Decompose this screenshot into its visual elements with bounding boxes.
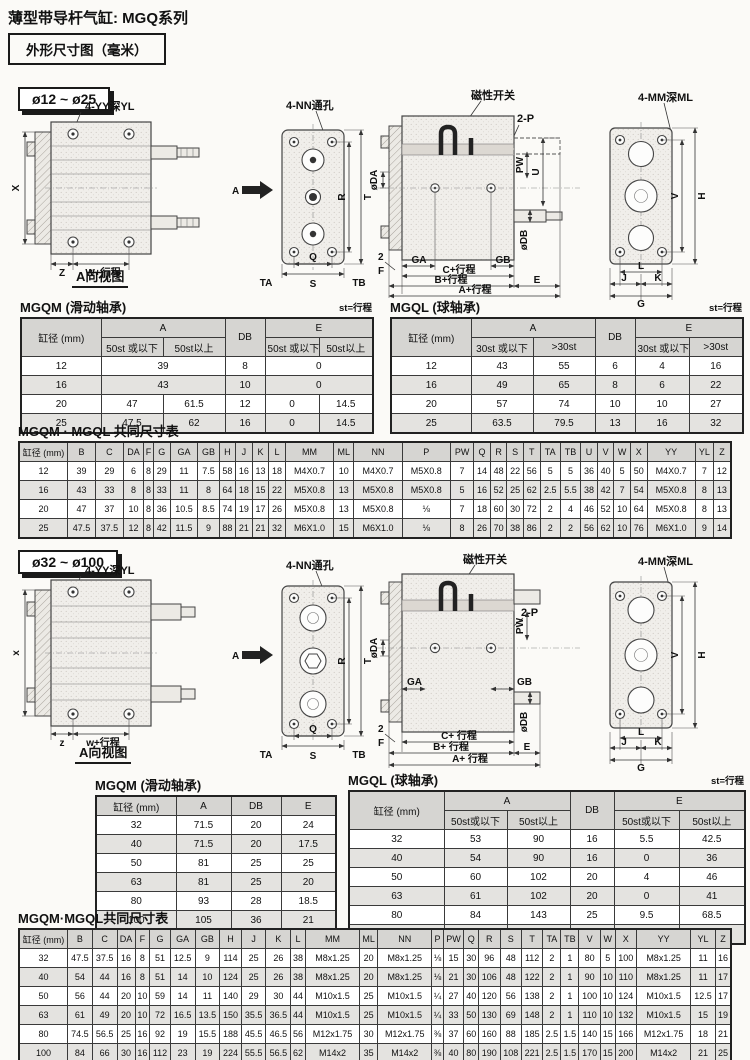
dim-label-f: F <box>378 738 384 749</box>
header-cell: GA <box>170 929 195 949</box>
cell: 30 <box>117 1044 135 1060</box>
cell: 10 <box>225 376 265 395</box>
cell: 20 <box>19 500 68 519</box>
dim-label-h: H <box>697 651 708 658</box>
table-title-common-s2: MGQM·MGQL共同尺寸表 <box>18 911 168 926</box>
cell: 5 <box>600 949 615 968</box>
cell: 42 <box>597 481 614 500</box>
cell: 47.5 <box>68 519 96 539</box>
cell: 64 <box>219 481 236 500</box>
dim-label-x: x <box>11 650 22 656</box>
cell: 8 <box>144 481 154 500</box>
cell: 20 <box>231 835 281 854</box>
cell: 1.5 <box>561 1044 579 1060</box>
cell: 36 <box>679 849 745 868</box>
header-cell: P <box>402 442 450 462</box>
cell: 19 <box>236 500 253 519</box>
cell: M10x1.5 <box>378 1006 432 1025</box>
common-table-s2: 缸径 (mm)BCDAFGGAGBHJKLMMMLNNPPWQRSTTATBVW… <box>18 928 732 1060</box>
datasheet-page: 薄型带导杆气缸: MGQ系列 外形尺寸图（毫米） ø12 ~ ø25 4-YY深… <box>0 0 750 1060</box>
header-cell: Q <box>474 442 491 462</box>
dim-label-db: øDB <box>519 230 530 251</box>
cell: 200 <box>615 1044 636 1060</box>
cell: 18 <box>474 500 491 519</box>
cell: 44 <box>291 987 306 1006</box>
cell: 7 <box>614 481 631 500</box>
cell: 50 <box>349 868 444 887</box>
cell: 32 <box>96 816 176 835</box>
header-cell: NN <box>354 442 402 462</box>
cell: 65 <box>533 376 595 395</box>
header-cell: GB <box>195 929 220 949</box>
header-cell: V <box>597 442 614 462</box>
cell: 24 <box>281 816 336 835</box>
cell: 2 <box>540 500 560 519</box>
cell: 0 <box>614 849 679 868</box>
cell: 13 <box>713 500 731 519</box>
cell: 12 <box>713 462 731 481</box>
cell: 18 <box>269 462 286 481</box>
section-view-diagram-s1: 磁性开关 2-P øDA PW U øDB GA GB C+行程 B+行程 E … <box>375 88 585 300</box>
cell: 35.5 <box>241 1006 266 1025</box>
header-cell: F <box>144 442 154 462</box>
cell: 148 <box>521 1006 542 1025</box>
cell: 8 <box>695 481 713 500</box>
cell: 60 <box>464 1025 479 1044</box>
cell: 20 <box>570 868 614 887</box>
cell: 60 <box>444 868 507 887</box>
cell: 48 <box>500 968 521 987</box>
cell: 10 <box>614 519 631 539</box>
cell: 32 <box>349 830 444 849</box>
cell: 170 <box>579 1044 600 1060</box>
cell: 33 <box>153 481 170 500</box>
cell: 124 <box>220 968 241 987</box>
cell: 69 <box>500 1006 521 1025</box>
cell: M10x1.5 <box>637 987 691 1006</box>
page-title: 薄型带导杆气缸: MGQ系列 <box>8 7 188 28</box>
dim-label-s: S <box>310 279 317 290</box>
header-cell: S <box>500 929 521 949</box>
cell: 140 <box>220 987 241 1006</box>
table-row: 63614920107216.513.515035.536.544M10x1.5… <box>19 1006 731 1025</box>
cell: 14.5 <box>319 395 373 414</box>
cell: 140 <box>579 1025 600 1044</box>
cell: 2 <box>540 519 560 539</box>
cell: 66 <box>92 1044 117 1060</box>
dim-label-ta: TA <box>260 278 273 289</box>
callout-2p-port: 2-P <box>521 607 538 619</box>
cell: M6X1.0 <box>647 519 695 539</box>
cell: 96 <box>479 949 500 968</box>
cell: 8 <box>595 376 635 395</box>
cell: 25 <box>360 987 378 1006</box>
cell: 45.5 <box>241 1025 266 1044</box>
table-row: 636110220041 <box>349 887 745 906</box>
callout-nn: 4-NN通孔 <box>286 559 334 572</box>
cell: 17 <box>715 968 731 987</box>
cell: 46.5 <box>266 1025 291 1044</box>
callout-magnetic-switch: 磁性开关 <box>471 88 515 102</box>
mgqm-block-s1: MGQM (滑动轴承)st=行程 缸径 (mm)ADBE50st 或以下50st… <box>20 297 372 434</box>
cell: 56 <box>500 987 521 1006</box>
cell: 26 <box>474 519 491 539</box>
cell: 8 <box>225 357 265 376</box>
cell: 25 <box>231 854 281 873</box>
cell: 26 <box>266 968 291 987</box>
cell: 122 <box>521 968 542 987</box>
cell: 16 <box>135 1044 150 1060</box>
cell: 16 <box>236 462 253 481</box>
cell: M4X0.7 <box>647 462 695 481</box>
cell: 40 <box>597 462 614 481</box>
table-row: 63812520 <box>96 873 336 892</box>
header-cell: YY <box>647 442 695 462</box>
header-cell: 50st以上 <box>679 811 745 830</box>
header-cell: TB <box>560 442 580 462</box>
header-cell: T <box>523 442 540 462</box>
cell: 44 <box>291 1006 306 1025</box>
dim-label-a-stroke: A+ 行程 <box>452 752 488 765</box>
cell: 60 <box>490 500 507 519</box>
cell: 124 <box>615 987 636 1006</box>
cell: ¼ <box>432 1006 443 1025</box>
cell: 47 <box>68 500 96 519</box>
cell: 15 <box>691 1006 716 1025</box>
header-cell: A <box>471 318 595 338</box>
cell: 63 <box>19 1006 68 1025</box>
table-row: 164333883311864181522M5X0.813M5X0.8M5X0.… <box>19 481 731 500</box>
cell: 0 <box>265 376 373 395</box>
cell: 21 <box>715 1025 731 1044</box>
section-view-diagram-s2: 磁性开关 2-P øDA PW GA GB øDB C+ 行程 B+ 行程 E … <box>375 552 585 774</box>
cell: 2 <box>543 987 561 1006</box>
cell: 33 <box>443 1006 464 1025</box>
dim-label-v: V <box>670 192 681 199</box>
dim-label-e: E <box>524 742 531 753</box>
cell: 61 <box>68 1006 93 1025</box>
cell: 160 <box>479 1025 500 1044</box>
header-cell: TA <box>540 442 560 462</box>
table-row: 405444168511410124252638M8x1.2520M8x1.25… <box>19 968 731 987</box>
cell: 8 <box>135 949 150 968</box>
header-cell: W <box>600 929 615 949</box>
dim-label-c-stroke: C+ 行程 <box>441 729 477 742</box>
cell: 138 <box>521 987 542 1006</box>
dim-label-l: L <box>638 261 644 272</box>
cell: 16 <box>474 481 491 500</box>
dim-label-j: J <box>621 737 627 748</box>
cell: 49 <box>92 1006 117 1025</box>
header-cell: 缸径 (mm) <box>19 442 68 462</box>
cell: 54 <box>444 849 507 868</box>
dim-label-z: Z <box>59 268 65 279</box>
header-cell: J <box>241 929 266 949</box>
cell: 29 <box>241 987 266 1006</box>
cell: 10 <box>123 500 143 519</box>
cell: 14 <box>170 987 195 1006</box>
cell: ¼ <box>432 987 443 1006</box>
cell: 15 <box>600 1025 615 1044</box>
dim-label-r: R <box>337 657 348 665</box>
cell: 25 <box>19 519 68 539</box>
dim-label-da: øDA <box>369 638 380 659</box>
cell: 9 <box>195 949 220 968</box>
common-block-s2: MGQM·MGQL共同尺寸表 缸径 (mm)BCDAFGGAGBHJKLMMML… <box>18 908 732 1060</box>
table-header-row: 缸径 (mm)BCDAFGGAGBHJKLMMMLNNPPWQRSTTATBUV… <box>19 442 731 462</box>
cell: 9 <box>198 519 219 539</box>
cell: 40 <box>19 968 68 987</box>
dimension-box-title: 外形尺寸图（毫米） <box>8 33 166 65</box>
header-cell: S <box>507 442 524 462</box>
cell: 49 <box>471 376 533 395</box>
header-cell: 30st 或以下 <box>635 338 689 357</box>
cell: 25 <box>507 481 524 500</box>
dim-label-l: L <box>638 727 644 738</box>
cell: 61 <box>444 887 507 906</box>
header-cell: R <box>479 929 500 949</box>
cell: M8x1.25 <box>305 949 359 968</box>
cell: 39 <box>68 462 96 481</box>
cell: 44 <box>92 987 117 1006</box>
dim-label-db: øDB <box>519 712 530 733</box>
cell: M5X0.8 <box>285 500 333 519</box>
header-cell: 50st 或以下 <box>265 338 319 357</box>
header-cell: DA <box>123 442 143 462</box>
header-cell: A <box>101 318 225 338</box>
header-cell: E <box>281 796 336 816</box>
dim-label-k: K <box>654 273 662 284</box>
cell: 23 <box>170 1044 195 1060</box>
stroke-note: st=行程 <box>711 773 744 787</box>
header-cell: C <box>92 929 117 949</box>
cell: 37.5 <box>95 519 123 539</box>
cell: 56 <box>68 987 93 1006</box>
cell: 59 <box>150 987 171 1006</box>
cell: 10 <box>600 987 615 1006</box>
cell: 21 <box>691 1044 716 1060</box>
cell: 20 <box>570 887 614 906</box>
cell: 55 <box>533 357 595 376</box>
cell: 81 <box>176 873 231 892</box>
cell: M4X0.7 <box>354 462 402 481</box>
cell: 8.5 <box>198 500 219 519</box>
cell: 13 <box>334 500 354 519</box>
table-row: 2547.537.51284211.5988212132M6X1.015M6X1… <box>19 519 731 539</box>
cell: 29 <box>95 462 123 481</box>
cell: 150 <box>220 1006 241 1025</box>
header-cell: T <box>521 929 542 949</box>
cell: 30 <box>464 949 479 968</box>
cell: 42.5 <box>679 830 745 849</box>
cell: 11 <box>170 481 198 500</box>
header-cell: 50st以上 <box>507 811 570 830</box>
cell: 74 <box>533 395 595 414</box>
header-cell: 30st 或以下 <box>471 338 533 357</box>
cell: 62 <box>523 481 540 500</box>
dim-label-da: øDA <box>369 170 380 191</box>
cell: M10x1.5 <box>305 1006 359 1025</box>
cell: 12 <box>21 357 101 376</box>
cell: M6X1.0 <box>354 519 402 539</box>
header-cell: 缸径 (mm) <box>96 796 176 816</box>
cell: 224 <box>220 1044 241 1060</box>
stroke-note: st=行程 <box>709 300 742 314</box>
header-cell: DB <box>225 318 265 357</box>
cell: 2 <box>543 1006 561 1025</box>
table-title-common-s1: MGQM · MGQL 共同尺寸表 <box>18 424 179 439</box>
header-cell: 50st 或以下 <box>101 338 163 357</box>
header-cell: U <box>581 442 598 462</box>
cell: 33 <box>95 481 123 500</box>
cell: 53 <box>444 830 507 849</box>
cell: 13 <box>713 481 731 500</box>
cell: 16 <box>391 376 471 395</box>
stroke-note: st=行程 <box>339 300 372 314</box>
header-cell: G <box>153 442 170 462</box>
callout-yy: 4-YY深YL <box>85 563 135 577</box>
header-cell: YY <box>637 929 691 949</box>
dim-label-b-stroke: B+ 行程 <box>433 740 469 753</box>
cell: 48 <box>490 462 507 481</box>
callout-mm: 4-MM深ML <box>638 554 693 568</box>
cell: 13 <box>334 481 354 500</box>
header-cell: P <box>432 929 443 949</box>
cell: 108 <box>500 1044 521 1060</box>
table-row: 1243556416 <box>391 357 743 376</box>
table-row: 205774101027 <box>391 395 743 414</box>
table-row: 10084663016112231922455.556.562M14x235M1… <box>19 1044 731 1060</box>
dim-label-s: S <box>310 751 317 762</box>
cell: 1 <box>561 1006 579 1025</box>
cell: 166 <box>615 1025 636 1044</box>
cell: 11 <box>170 462 198 481</box>
header-cell: 缸径 (mm) <box>391 318 471 357</box>
callout-yy: 4-YY深YL <box>85 99 135 113</box>
cell: 16 <box>117 949 135 968</box>
back-view-diagram-s2: 4-MM深ML V H L J K G <box>582 552 720 774</box>
cell: 20 <box>117 1006 135 1025</box>
cell: 57 <box>471 395 533 414</box>
cell: 56 <box>523 462 540 481</box>
view-direction-arrow <box>242 646 273 664</box>
header-cell: DB <box>595 318 635 357</box>
cell: M12x1.75 <box>637 1025 691 1044</box>
header-cell: L <box>291 929 306 949</box>
table-header-row: 缸径 (mm)BCDAFGGAGBHJKLMMMLNNPPWQRSTTATBVW… <box>19 929 731 949</box>
header-cell: GB <box>198 442 219 462</box>
view-direction-arrow <box>242 181 273 199</box>
table-row: 4071.52017.5 <box>96 835 336 854</box>
cell: 17 <box>715 987 731 1006</box>
cell: 1 <box>561 949 579 968</box>
header-cell: DB <box>570 791 614 830</box>
header-cell: GA <box>170 442 198 462</box>
cell: 30 <box>360 1025 378 1044</box>
cell: 12.5 <box>170 949 195 968</box>
cell: M8x1.25 <box>637 949 691 968</box>
header-cell: PW <box>443 929 464 949</box>
table-title-mgqm-s2: MGQM (滑动轴承) <box>95 778 201 793</box>
header-cell: TB <box>561 929 579 949</box>
cell: 92 <box>150 1025 171 1044</box>
cell: 56.5 <box>92 1025 117 1044</box>
dim-label-z: z <box>60 738 65 749</box>
dim-label-v: V <box>670 651 681 658</box>
cell: 114 <box>220 949 241 968</box>
table-row: 3271.52024 <box>96 816 336 835</box>
cell: 10 <box>600 1006 615 1025</box>
cell: 50 <box>19 987 68 1006</box>
cell: 72 <box>150 1006 171 1025</box>
cell: 7 <box>450 500 473 519</box>
cell: 74.5 <box>68 1025 93 1044</box>
cell: M5X0.8 <box>354 500 402 519</box>
cell: 63 <box>96 873 176 892</box>
cell: 64 <box>630 500 647 519</box>
cell: 5 <box>560 462 580 481</box>
cell: 1 <box>561 987 579 1006</box>
cell: 55.5 <box>241 1044 266 1060</box>
cell: 5.5 <box>614 830 679 849</box>
header-cell: E <box>614 791 745 811</box>
cell: 40 <box>349 849 444 868</box>
dim-label-h: H <box>697 192 708 199</box>
cell: M10x1.5 <box>378 987 432 1006</box>
cell: 20 <box>117 987 135 1006</box>
table-header-row: 缸径 (mm)ADBE <box>391 318 743 338</box>
cell: ⅛ <box>432 949 443 968</box>
cell: M5X0.8 <box>354 481 402 500</box>
header-cell: R <box>490 442 507 462</box>
header-cell: A <box>444 791 570 811</box>
view-arrow-label: A <box>232 651 239 662</box>
cell: 16 <box>19 481 68 500</box>
cell: 51 <box>150 949 171 968</box>
header-cell: DA <box>117 929 135 949</box>
header-cell: NN <box>378 929 432 949</box>
mgql-table-s1: 缸径 (mm)ADBE30st 或以下>30st30st 或以下>30st124… <box>390 317 744 434</box>
header-cell: 缸径 (mm) <box>19 929 68 949</box>
cell: 19 <box>170 1025 195 1044</box>
cell: 5 <box>540 462 560 481</box>
cell: 106 <box>479 968 500 987</box>
cell: 0 <box>614 887 679 906</box>
cell: ⅜ <box>432 1044 443 1060</box>
header-cell: Z <box>715 929 731 949</box>
cell: 10 <box>635 395 689 414</box>
cell: 43 <box>471 357 533 376</box>
callout-nn: 4-NN通孔 <box>286 99 334 112</box>
cell: 10 <box>135 987 150 1006</box>
table-row: 50812525 <box>96 854 336 873</box>
cell: 47 <box>101 395 163 414</box>
cell: M10x1.5 <box>637 1006 691 1025</box>
cell: 32 <box>19 949 68 968</box>
cell: 11 <box>195 987 220 1006</box>
header-cell: A <box>176 796 231 816</box>
cell: 15.5 <box>195 1025 220 1044</box>
cell: M6X1.0 <box>285 519 333 539</box>
cell: 15 <box>334 519 354 539</box>
dim-label-tb: TB <box>352 750 365 761</box>
cell: 74 <box>219 500 236 519</box>
dim-label-ga: GA <box>412 255 427 266</box>
cell: ⅜ <box>432 1025 443 1044</box>
cell: 13.5 <box>195 1006 220 1025</box>
cell: 2.5 <box>540 481 560 500</box>
cell: 22 <box>269 481 286 500</box>
